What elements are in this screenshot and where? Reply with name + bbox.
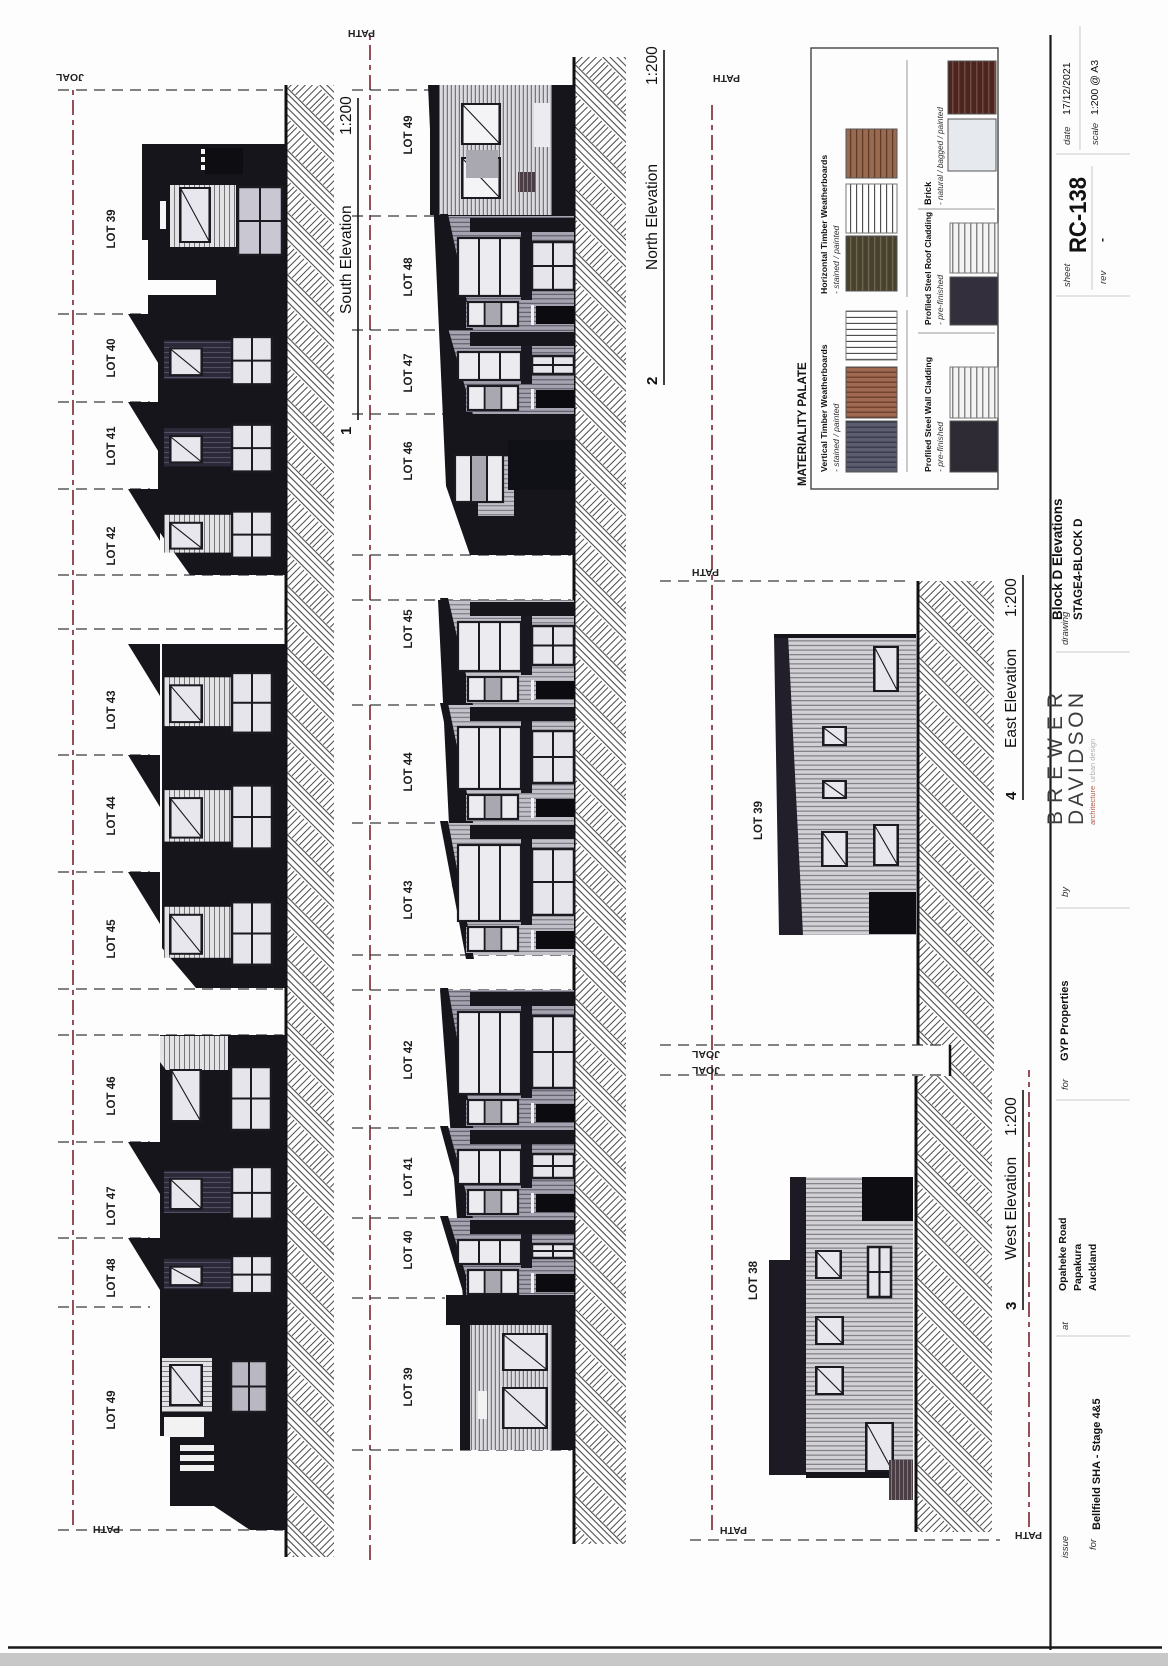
svg-text:by: by [1060,886,1071,897]
svg-text:West Elevation: West Elevation [1003,1157,1020,1260]
svg-text:LOT 45: LOT 45 [403,609,415,649]
svg-text:1:200: 1:200 [1003,578,1020,617]
svg-text:LOT 43: LOT 43 [403,881,415,920]
svg-text:PATH: PATH [1015,1529,1042,1541]
svg-text:at: at [1060,1322,1071,1330]
svg-text:PATH: PATH [713,72,740,84]
svg-text:sheet: sheet [1062,263,1073,287]
svg-text:LOT 41: LOT 41 [403,1157,415,1197]
svg-text:architecture: architecture [1088,786,1097,825]
svg-text:urban design: urban design [1088,739,1097,782]
svg-text:for: for [1060,1078,1071,1090]
svg-text:East Elevation: East Elevation [1003,649,1020,748]
svg-text:2: 2 [644,377,661,385]
svg-text:LOT 47: LOT 47 [106,1187,118,1226]
svg-text:LOT 39: LOT 39 [753,801,765,840]
svg-text:3: 3 [1003,1302,1020,1310]
svg-text:1:200 @ A3: 1:200 @ A3 [1089,60,1101,115]
svg-text:Auckland: Auckland [1087,1244,1099,1291]
svg-text:LOT 47: LOT 47 [403,354,415,393]
svg-text:Brick: Brick [923,181,933,205]
svg-text:- pre-finished: - pre-finished [935,275,945,325]
svg-text:LOT 44: LOT 44 [106,796,118,836]
svg-text:1:200: 1:200 [338,96,355,135]
svg-text:Profiled Steel Roof Cladding: Profiled Steel Roof Cladding [923,212,933,325]
svg-text:PATH: PATH [720,1524,747,1536]
svg-text:PATH: PATH [93,1523,120,1535]
svg-text:scale: scale [1090,123,1101,145]
svg-text:-: - [1095,238,1109,242]
svg-text:PATH: PATH [348,27,375,39]
svg-text:RC-138: RC-138 [1065,177,1092,253]
svg-text:JOAL: JOAL [691,1048,720,1060]
svg-text:Opaheke Road: Opaheke Road [1057,1217,1069,1291]
svg-text:LOT 46: LOT 46 [403,442,415,481]
svg-text:rev: rev [1098,270,1109,284]
svg-text:MATERIALITY PALATE: MATERIALITY PALATE [797,362,809,486]
svg-text:JOAL: JOAL [691,1064,720,1076]
svg-text:LOT 42: LOT 42 [403,1041,415,1080]
svg-text:North Elevation: North Elevation [644,164,661,270]
svg-text:Bellfield SHA - Stage 4&5: Bellfield SHA - Stage 4&5 [1091,1398,1103,1530]
svg-text:LOT 43: LOT 43 [106,691,118,730]
svg-text:- stained / painted: - stained / painted [831,225,841,294]
svg-text:LOT 44: LOT 44 [403,752,415,792]
svg-text:LOT 45: LOT 45 [106,919,118,959]
svg-text:for: for [1088,1538,1099,1550]
svg-text:DAVIDSON: DAVIDSON [1065,693,1088,825]
svg-text:1:200: 1:200 [644,46,661,85]
svg-text:LOT 46: LOT 46 [106,1077,118,1116]
svg-text:LOT 48: LOT 48 [403,257,415,297]
svg-text:17/12/2021: 17/12/2021 [1061,62,1073,115]
svg-text:Papakura: Papakura [1072,1244,1084,1291]
svg-text:PATH: PATH [692,566,719,578]
svg-text:- natural / bagged / painted: - natural / bagged / painted [936,107,945,205]
svg-text:Horizontal Timber Weatherboard: Horizontal Timber Weatherboards [819,155,829,294]
svg-text:LOT 40: LOT 40 [106,339,118,378]
svg-text:1:200: 1:200 [1003,1097,1020,1136]
svg-text:STAGE4-BLOCK D: STAGE4-BLOCK D [1073,519,1085,620]
svg-text:LOT 40: LOT 40 [403,1231,415,1270]
svg-text:South Elevation: South Elevation [338,205,355,314]
svg-text:LOT 38: LOT 38 [748,1260,760,1300]
svg-text:date: date [1062,127,1073,146]
svg-text:Profiled Steel Wall Cladding: Profiled Steel Wall Cladding [923,357,933,472]
svg-text:issue: issue [1060,1536,1071,1558]
svg-text:Vertical Timber Weatherboards: Vertical Timber Weatherboards [819,344,829,472]
svg-text:1: 1 [338,427,355,435]
svg-text:Block D Elevations: Block D Elevations [1050,498,1065,620]
svg-text:LOT 42: LOT 42 [106,527,118,566]
svg-text:4: 4 [1003,791,1020,800]
svg-text:JOAL: JOAL [55,71,84,83]
svg-text:LOT 39: LOT 39 [106,210,118,249]
svg-text:LOT 48: LOT 48 [106,1258,118,1298]
svg-text:LOT 49: LOT 49 [106,1391,118,1430]
svg-text:LOT 49: LOT 49 [403,116,415,155]
svg-text:LOT 41: LOT 41 [106,426,118,466]
svg-text:GYP Properties: GYP Properties [1059,981,1071,1062]
svg-text:- pre-finished: - pre-finished [935,422,945,472]
svg-text:LOT 39: LOT 39 [403,1368,415,1407]
svg-text:- stained / painted: - stained / painted [831,403,841,472]
